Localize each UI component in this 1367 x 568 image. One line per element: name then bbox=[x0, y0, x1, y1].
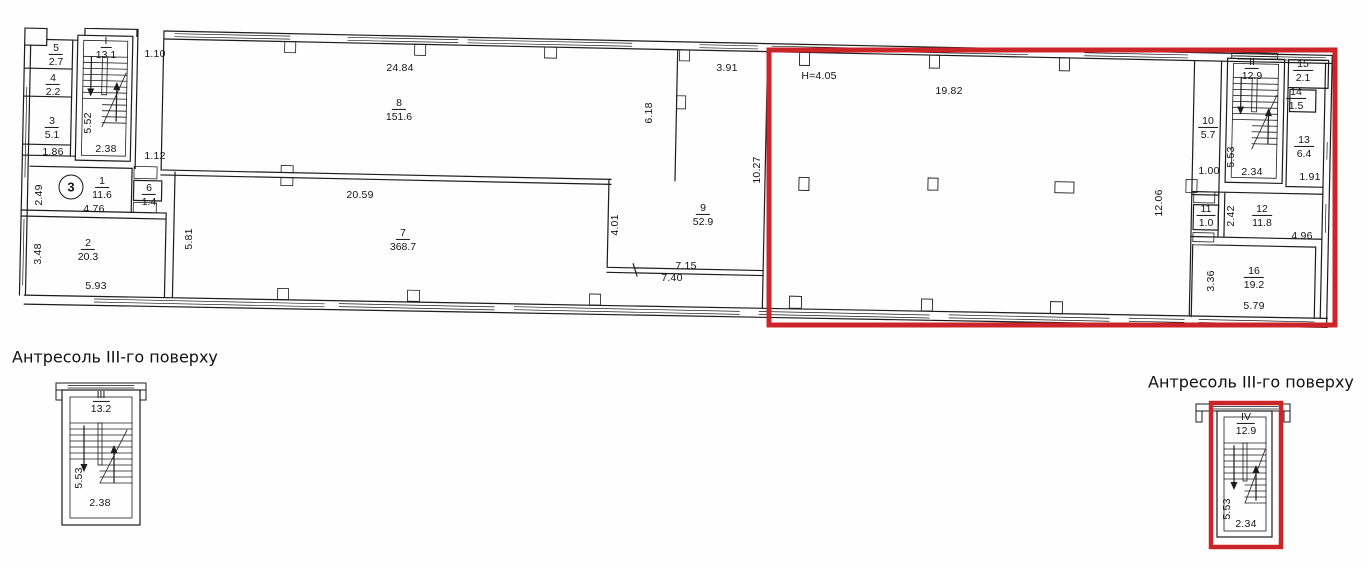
room-13-number: 13 bbox=[1294, 134, 1314, 147]
dim-stair1-height: 5.52 bbox=[83, 112, 94, 133]
stair-3-label: III13.2 bbox=[91, 389, 111, 415]
room-7-area: 368.7 bbox=[390, 240, 416, 253]
room-12-label: 1211.8 bbox=[1252, 203, 1272, 229]
stair-2-number: II bbox=[1245, 56, 1259, 69]
stair-2-label: II12.9 bbox=[1242, 56, 1262, 82]
room-1-number: 1 bbox=[95, 175, 109, 188]
room-10-area: 5.7 bbox=[1201, 128, 1216, 141]
dim-room7-left-height: 5.81 bbox=[184, 228, 195, 249]
dim-hall-width: 19.82 bbox=[935, 86, 962, 97]
stair-4-label: IV12.9 bbox=[1236, 411, 1256, 437]
room-9-label: 952.9 bbox=[693, 202, 713, 228]
room-16-area: 19.2 bbox=[1244, 278, 1264, 291]
dim-room1-height: 2.49 bbox=[34, 184, 45, 205]
floor-number-marker: 3 bbox=[59, 175, 84, 200]
dim-room2-height: 3.48 bbox=[33, 243, 44, 264]
room-14-area: 1.5 bbox=[1289, 99, 1304, 112]
room-14-label: 141.5 bbox=[1286, 86, 1306, 112]
dim-stair3-width: 2.38 bbox=[89, 498, 110, 509]
dim-stair1-width: 2.38 bbox=[95, 144, 116, 155]
dim-room12-width: 4.96 bbox=[1291, 231, 1312, 242]
dim-room7-width: 20.59 bbox=[346, 190, 373, 201]
hall-columns bbox=[789, 52, 1076, 314]
room-9-number: 9 bbox=[696, 202, 710, 215]
dim-room8-right-height: 6.18 bbox=[644, 102, 655, 123]
dim-stair4-height: 5.53 bbox=[1222, 498, 1233, 519]
dim-room16-width: 5.79 bbox=[1243, 301, 1264, 312]
room-7-label: 7368.7 bbox=[390, 227, 416, 253]
dim-room16-height: 3.36 bbox=[1206, 270, 1217, 291]
dim-room9-outer-width: 7.40 bbox=[661, 273, 682, 284]
room-7-number: 7 bbox=[396, 227, 410, 240]
dim-gap-top: 1.10 bbox=[144, 49, 165, 60]
stair-4-area: 12.9 bbox=[1236, 424, 1256, 437]
room-9-area: 52.9 bbox=[693, 215, 713, 228]
dim-room9-inner-width: 7.15 bbox=[675, 261, 696, 272]
room-11-number: 11 bbox=[1197, 203, 1216, 216]
room-1-label: 111.6 bbox=[92, 175, 112, 201]
dim-block-width: 1.86 bbox=[42, 147, 63, 158]
dim-hall-depth: 12.06 bbox=[1154, 189, 1165, 216]
stair-1-area: 13.1 bbox=[96, 48, 116, 61]
room-15-number: 15 bbox=[1293, 58, 1313, 71]
room-6-area: 1.4 bbox=[142, 195, 157, 208]
room-5-area: 2.7 bbox=[49, 55, 64, 68]
dim-room1-width: 4.76 bbox=[83, 204, 104, 215]
floorplan-drawing bbox=[0, 0, 1367, 568]
dim-room9-top-width: 3.91 bbox=[716, 63, 737, 74]
room-14-number: 14 bbox=[1286, 86, 1306, 99]
room-12-number: 12 bbox=[1252, 203, 1272, 216]
room-3-number: 3 bbox=[45, 115, 59, 128]
room-5-number: 5 bbox=[49, 42, 63, 55]
room-4-area: 2.2 bbox=[46, 85, 61, 98]
dim-room12-height: 2.42 bbox=[1226, 205, 1237, 226]
room-13-label: 136.4 bbox=[1294, 134, 1314, 160]
stair-1-label: I13.1 bbox=[96, 35, 116, 61]
dim-hall-height-note: H=4.05 bbox=[801, 71, 836, 82]
dim-room9-left-height: 4.01 bbox=[610, 214, 621, 235]
room-5-label: 52.7 bbox=[49, 42, 64, 68]
room-10-number: 10 bbox=[1198, 115, 1218, 128]
room-11-label: 111.0 bbox=[1197, 203, 1216, 229]
room-8-number: 8 bbox=[392, 97, 406, 110]
room-3-label: 35.1 bbox=[45, 115, 60, 141]
room-6-number: 6 bbox=[142, 182, 156, 195]
room-16-number: 16 bbox=[1244, 265, 1264, 278]
dim-stair2-height: 5.53 bbox=[1226, 146, 1237, 167]
building-walls bbox=[19, 27, 1333, 331]
dim-gap-mid: 1.12 bbox=[144, 151, 165, 162]
stair-3-number: III bbox=[93, 389, 110, 402]
dim-stair2-width: 2.34 bbox=[1241, 167, 1262, 178]
room-16-label: 1619.2 bbox=[1244, 265, 1264, 291]
room-4-number: 4 bbox=[46, 72, 60, 85]
mezzanine-right-title: Антресоль III-го поверху bbox=[1148, 373, 1354, 392]
mezzanine-left-title: Антресоль III-го поверху bbox=[12, 348, 218, 367]
dim-room2-width: 5.93 bbox=[85, 281, 106, 292]
dim-stair4-width: 2.34 bbox=[1235, 519, 1256, 530]
room-6-label: 61.4 bbox=[142, 182, 157, 208]
room-4-label: 42.2 bbox=[46, 72, 61, 98]
room-12-area: 11.8 bbox=[1252, 216, 1272, 229]
room-10-label: 105.7 bbox=[1198, 115, 1218, 141]
room-13-area: 6.4 bbox=[1297, 147, 1312, 160]
room-2-number: 2 bbox=[81, 237, 95, 250]
dim-room8-width: 24.84 bbox=[386, 63, 413, 74]
stair-3-area: 13.2 bbox=[91, 402, 111, 415]
room-15-label: 152.1 bbox=[1293, 58, 1313, 84]
stair-2-area: 12.9 bbox=[1242, 69, 1262, 82]
dim-room9-right-height: 10.27 bbox=[752, 156, 763, 183]
dim-room13-width: 1.91 bbox=[1299, 172, 1320, 183]
room-2-label: 220.3 bbox=[78, 237, 98, 263]
room-8-area: 151.6 bbox=[386, 110, 412, 123]
room-3-area: 5.1 bbox=[45, 128, 60, 141]
stair-1-number: I bbox=[101, 35, 112, 48]
room-1-area: 11.6 bbox=[92, 188, 112, 201]
dim-stair3-height: 5.53 bbox=[74, 467, 85, 488]
room-15-area: 2.1 bbox=[1296, 71, 1311, 84]
room-8-label: 8151.6 bbox=[386, 97, 412, 123]
dim-room10-width: 1.00 bbox=[1198, 166, 1219, 177]
floorplan-page: Антресоль III-го поверху Антресоль III-г… bbox=[0, 0, 1367, 568]
room-2-area: 20.3 bbox=[78, 250, 98, 263]
stair-4-number: IV bbox=[1237, 411, 1255, 424]
room-11-area: 1.0 bbox=[1199, 216, 1214, 229]
